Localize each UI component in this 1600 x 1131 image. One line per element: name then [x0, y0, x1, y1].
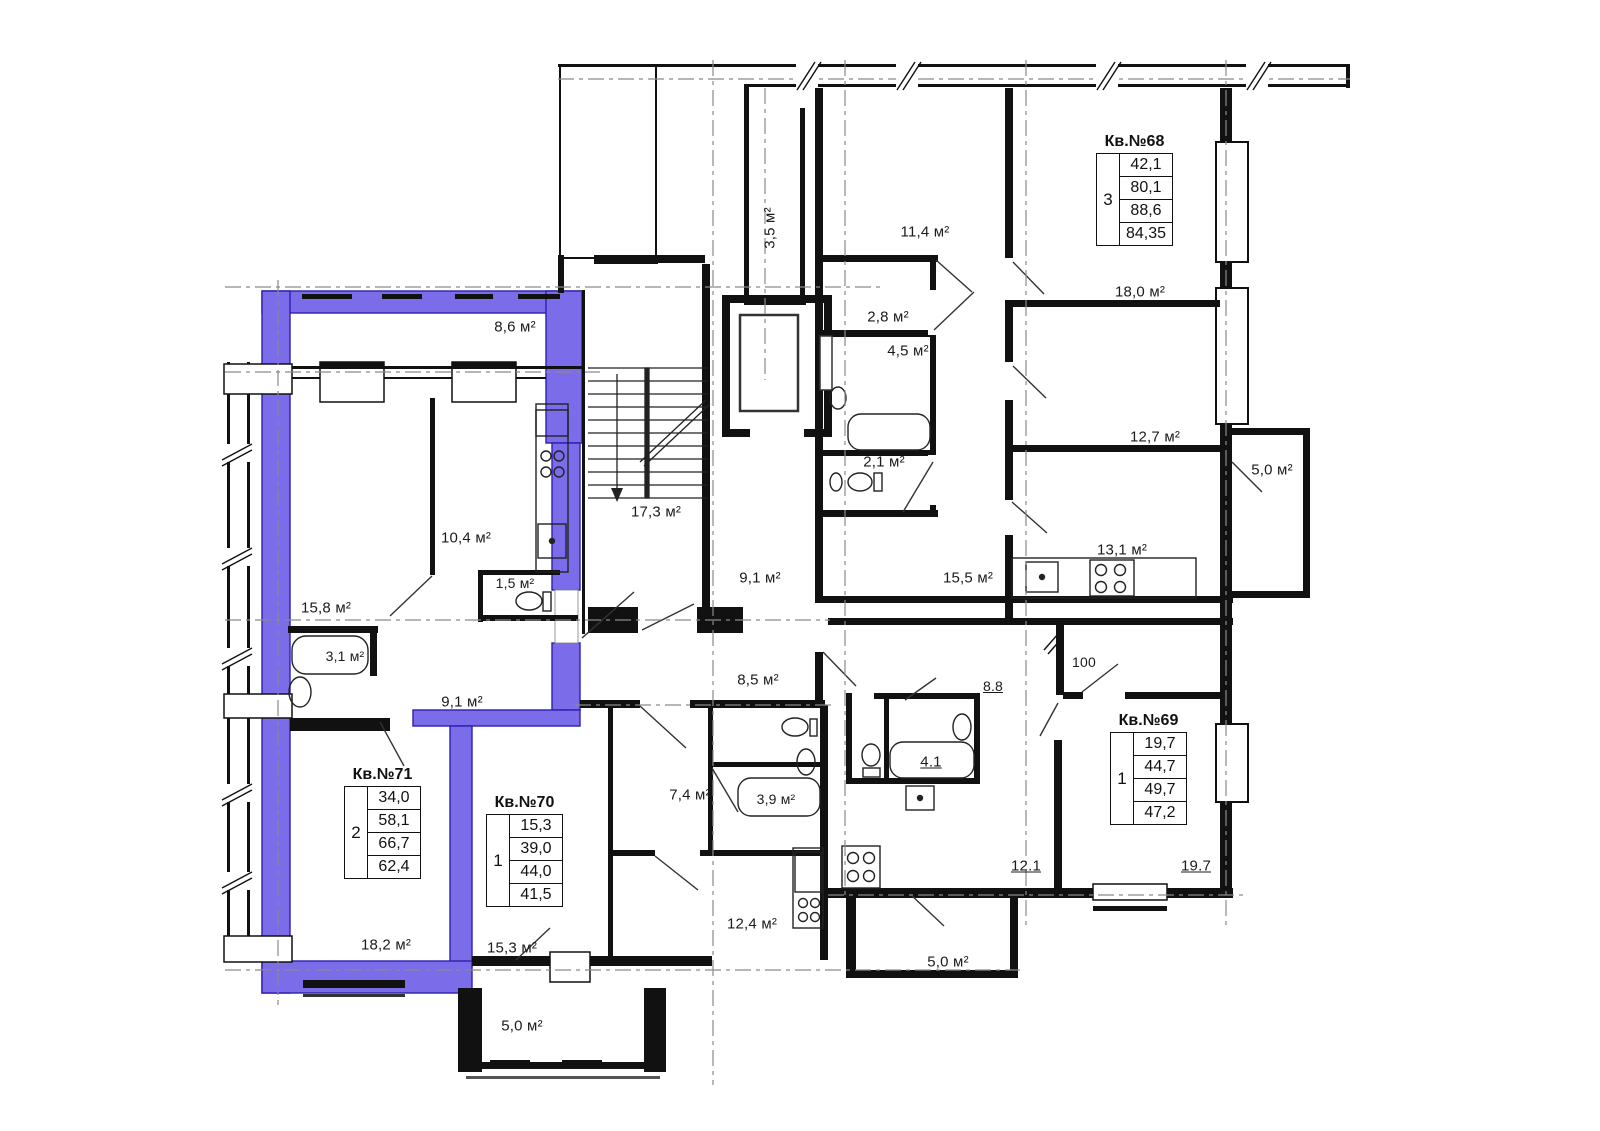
area-value: 84,35 [1120, 223, 1172, 245]
apartment-areas-table: 3 42,1 80,1 88,6 84,35 [1096, 153, 1173, 246]
area-value: 15,3 [510, 815, 562, 838]
axis-lines [225, 60, 1350, 1085]
toilet-apt71 [516, 592, 542, 610]
label-corridor-91: 9,1 м² [739, 570, 781, 587]
elevator-door-slot [820, 336, 832, 390]
area-value: 34,0 [368, 787, 420, 810]
apartment-areas-table: 1 15,3 39,0 44,0 41,5 [486, 814, 563, 907]
label-kitchen-104: 10,4 м² [441, 530, 491, 547]
apartment-card-68[interactable]: Кв.№68 3 42,1 80,1 88,6 84,35 [1096, 133, 1173, 246]
label-room-158: 15,8 м² [301, 600, 351, 617]
label-kitchen-131: 13,1 м² [1097, 542, 1147, 559]
label-room-114: 11,4 м² [901, 224, 950, 241]
label-balcony-50-bottom: 5,0 м² [501, 1018, 543, 1035]
apartment-room-count: 3 [1097, 154, 1120, 245]
apartment-title: Кв.№68 [1096, 133, 1173, 151]
apartment-title: Кв.№69 [1110, 712, 1187, 730]
plan-drawing [0, 0, 1600, 1131]
area-value: 58,1 [368, 810, 420, 833]
area-value: 42,1 [1120, 154, 1172, 177]
area-value: 49,7 [1134, 779, 1186, 802]
toilet-apt70 [782, 718, 808, 736]
label-wc-21: 2,1 м² [863, 454, 905, 471]
label-wc-15: 1,5 м² [496, 575, 535, 591]
area-value: 80,1 [1120, 177, 1172, 200]
label-balcony-50-mid: 5,0 м² [927, 954, 969, 971]
label-dim-100: 100 [1072, 654, 1096, 670]
area-value: 41,5 [510, 884, 562, 906]
label-hall-74: 7,4 м² [669, 787, 711, 804]
apartment-card-71[interactable]: Кв.№71 2 34,0 58,1 66,7 62,4 [344, 766, 421, 879]
apartment-room-count: 1 [1111, 733, 1134, 824]
toilet-apt68 [848, 473, 872, 491]
label-hall-28: 2,8 м² [867, 309, 909, 326]
apartment-areas-table: 1 19,7 44,7 49,7 47,2 [1110, 732, 1187, 825]
sink-apt71 [289, 677, 311, 707]
apartment-card-69[interactable]: Кв.№69 1 19,7 44,7 49,7 47,2 [1110, 712, 1187, 825]
elevator-cabin [740, 315, 798, 411]
label-bath-41: 4.1 [920, 754, 941, 771]
outer-walls [227, 64, 1350, 1079]
label-bath-31: 3,1 м² [326, 648, 365, 664]
area-value: 47,2 [1134, 802, 1186, 824]
toilet-apt69 [862, 744, 880, 766]
label-stair-173: 17,3 м² [631, 504, 681, 521]
stair-direction-arrow [611, 488, 623, 502]
staircase [588, 368, 710, 498]
label-room-153: 15,3 м² [487, 940, 537, 957]
label-hall-85: 8,5 м² [737, 672, 779, 689]
sink-apt68 [830, 387, 846, 409]
label-room-127: 12,7 м² [1130, 429, 1180, 446]
label-balcony-50-right: 5,0 м² [1251, 462, 1293, 479]
label-room-197: 19.7 [1181, 858, 1211, 875]
area-value: 66,7 [368, 833, 420, 856]
label-balcony-86: 8,6 м² [494, 319, 536, 336]
apartment-title: Кв.№70 [486, 794, 563, 812]
label-hall-88: 8.8 [983, 678, 1003, 694]
apartment-areas-table: 2 34,0 58,1 66,7 62,4 [344, 786, 421, 879]
sink-apt69 [953, 714, 971, 740]
label-room-121: 12.1 [1011, 858, 1041, 875]
apartment-title: Кв.№71 [344, 766, 421, 784]
apartment-room-count: 1 [487, 815, 510, 906]
floor-plan: 8,6 м² 3,5 м² 11,4 м² 2,8 м² 4,5 м² 18,0… [0, 0, 1600, 1131]
area-value: 88,6 [1120, 200, 1172, 223]
label-bath-45: 4,5 м² [887, 343, 929, 360]
label-hall-91: 9,1 м² [441, 694, 483, 711]
bathtub-apt68 [848, 414, 930, 450]
label-room-155: 15,5 м² [943, 570, 993, 587]
area-value: 62,4 [368, 856, 420, 878]
area-value: 44,0 [510, 861, 562, 884]
inner-walls [288, 88, 1233, 960]
apartment-room-count: 2 [345, 787, 368, 878]
label-loggia-35: 3,5 м² [762, 207, 779, 249]
area-value: 19,7 [1134, 733, 1186, 756]
label-bath-39: 3,9 м² [757, 791, 796, 807]
label-kitchen-124: 12,4 м² [727, 916, 777, 933]
stove-apt69 [842, 846, 880, 888]
apartment-card-70[interactable]: Кв.№70 1 15,3 39,0 44,0 41,5 [486, 794, 563, 907]
label-room-182: 18,2 м² [361, 937, 411, 954]
area-value: 44,7 [1134, 756, 1186, 779]
area-value: 39,0 [510, 838, 562, 861]
label-room-180: 18,0 м² [1115, 284, 1165, 301]
